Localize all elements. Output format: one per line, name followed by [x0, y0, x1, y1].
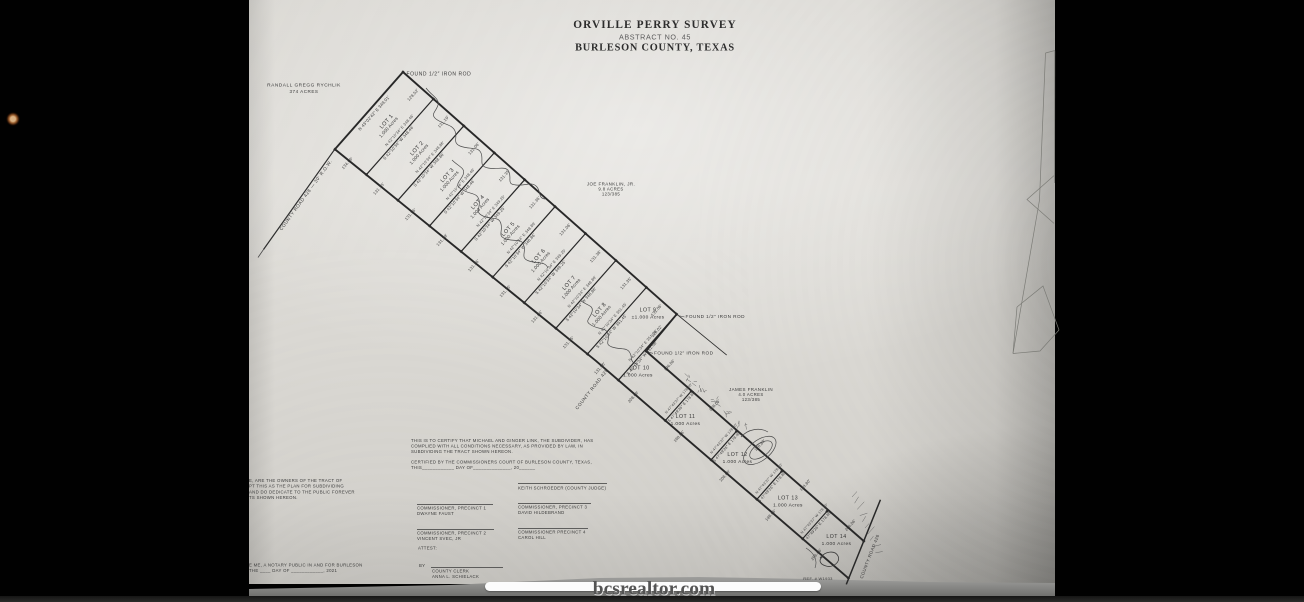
svg-text:ANNA L. SCHIELACK: ANNA L. SCHIELACK: [432, 574, 479, 579]
svg-text:123/385: 123/385: [742, 397, 761, 402]
svg-text:ATTEST:: ATTEST:: [418, 546, 437, 551]
svg-text:BY: BY: [419, 563, 425, 568]
svg-text:PT THIS AS THE PLAN FOR SUBDIV: PT THIS AS THE PLAN FOR SUBDIVIDING: [249, 484, 344, 489]
svg-text:FOUND 1/2″ IRON ROD: FOUND 1/2″ IRON ROD: [654, 351, 714, 356]
svg-text:131.35': 131.35': [497, 168, 510, 182]
svg-text:FOUND 1/2″ IRON ROD: FOUND 1/2″ IRON ROD: [686, 314, 746, 319]
svg-text:131.35': 131.35': [619, 276, 632, 290]
svg-text:FOUND 1/2″ IRON ROD: FOUND 1/2″ IRON ROD: [407, 72, 472, 78]
svg-text:TS SHOWN HEREON.: TS SHOWN HEREON.: [249, 495, 298, 500]
svg-text:BURLESON COUNTY, TEXAS: BURLESON COUNTY, TEXAS: [575, 43, 735, 54]
svg-text:AND DO DEDICATE TO THE PUBLIC: AND DO DEDICATE TO THE PUBLIC FOREVER: [249, 489, 355, 494]
svg-text:131.36': 131.36': [528, 195, 541, 209]
svg-text:COMMISSIONER, PRECINCT 3: COMMISSIONER, PRECINCT 3: [518, 505, 588, 510]
svg-text:LOT 12: LOT 12: [727, 452, 747, 458]
svg-text:E, ARE THE OWNERS OF THE TRACT: E, ARE THE OWNERS OF THE TRACT OF: [249, 478, 342, 483]
svg-text:REF. # W1933: REF. # W1933: [803, 576, 833, 581]
svg-text:E ME, A NOTARY PUBLIC IN AND F: E ME, A NOTARY PUBLIC IN AND FOR BURLESO…: [249, 563, 363, 568]
svg-text:±1.000 Acres: ±1.000 Acres: [632, 315, 665, 321]
svg-text:ORVILLE PERRY SURVEY: ORVILLE PERRY SURVEY: [573, 19, 737, 31]
svg-text:SUBDIVIDING THE TRACT SHOWN HE: SUBDIVIDING THE TRACT SHOWN HEREON.: [411, 449, 513, 454]
svg-text:COUNTY CLERK: COUNTY CLERK: [432, 569, 469, 574]
svg-text:131.38': 131.38': [589, 249, 602, 263]
svg-text:LOT 11: LOT 11: [676, 414, 696, 420]
svg-text:LOT 9: LOT 9: [640, 308, 657, 314]
svg-text:COMMISSIONER PRECINCT 4: COMMISSIONER PRECINCT 4: [518, 530, 586, 535]
svg-text:THIS____________ DAY OF_______: THIS____________ DAY OF______________, 2…: [411, 465, 536, 470]
svg-text:COMPLIED WITH ALL CONDITIONS N: COMPLIED WITH ALL CONDITIONS NECESSARY, …: [411, 444, 583, 449]
svg-text:ABSTRACT NO. 45: ABSTRACT NO. 45: [619, 33, 691, 42]
svg-text:COUNTY ROAD 428 — 30' R.O.W.: COUNTY ROAD 428 — 30' R.O.W.: [278, 159, 333, 232]
svg-text:THIS IS TO CERTIFY THAT MICHAE: THIS IS TO CERTIFY THAT MICHAEL AND GING…: [411, 438, 593, 443]
svg-text:374 ACRES: 374 ACRES: [289, 89, 318, 94]
svg-text:RANDALL GREGG RYCHLIK: RANDALL GREGG RYCHLIK: [267, 83, 341, 89]
svg-text:1.000 Acres: 1.000 Acres: [623, 373, 653, 379]
svg-text:COUNTY ROAD 428: COUNTY ROAD 428: [574, 368, 609, 411]
svg-text:THE ____ DAY OF ____________,: THE ____ DAY OF ____________, 2021: [249, 568, 337, 573]
svg-text:131.06': 131.06': [558, 222, 571, 236]
svg-text:LOT 13: LOT 13: [778, 496, 798, 502]
svg-text:123/385: 123/385: [602, 192, 621, 197]
svg-text:COMMISSIONER, PRECINCT 2: COMMISSIONER, PRECINCT 2: [417, 531, 487, 536]
svg-text:LOT 10: LOT 10: [629, 366, 649, 372]
svg-text:LOT 14: LOT 14: [826, 534, 846, 540]
svg-text:bcsrealtor.com: bcsrealtor.com: [593, 579, 716, 600]
svg-text:COMMISSIONER, PRECINCT 1: COMMISSIONER, PRECINCT 1: [417, 506, 487, 511]
svg-text:1.000 Acres: 1.000 Acres: [671, 421, 701, 427]
svg-text:1.000 Acres: 1.000 Acres: [773, 503, 803, 509]
svg-text:131.19': 131.19': [437, 114, 450, 128]
svg-text:CERTIFIED BY THE COMMISSIONERS: CERTIFIED BY THE COMMISSIONERS COURT OF …: [411, 460, 592, 465]
svg-text:DWAYNE FAUST: DWAYNE FAUST: [417, 511, 454, 516]
svg-text:CAROL HILL: CAROL HILL: [518, 535, 546, 540]
svg-text:VINCENT SVEC, JR: VINCENT SVEC, JR: [417, 536, 461, 541]
svg-text:KEITH SCHROEDER (COUNTY JUDGE): KEITH SCHROEDER (COUNTY JUDGE): [518, 486, 606, 491]
svg-text:196.06': 196.06': [663, 358, 676, 372]
svg-text:1.000 Acres: 1.000 Acres: [822, 541, 852, 547]
svg-text:128.52': 128.52': [406, 88, 419, 102]
svg-text:DAVID HILDEBRAND: DAVID HILDEBRAND: [518, 510, 565, 515]
